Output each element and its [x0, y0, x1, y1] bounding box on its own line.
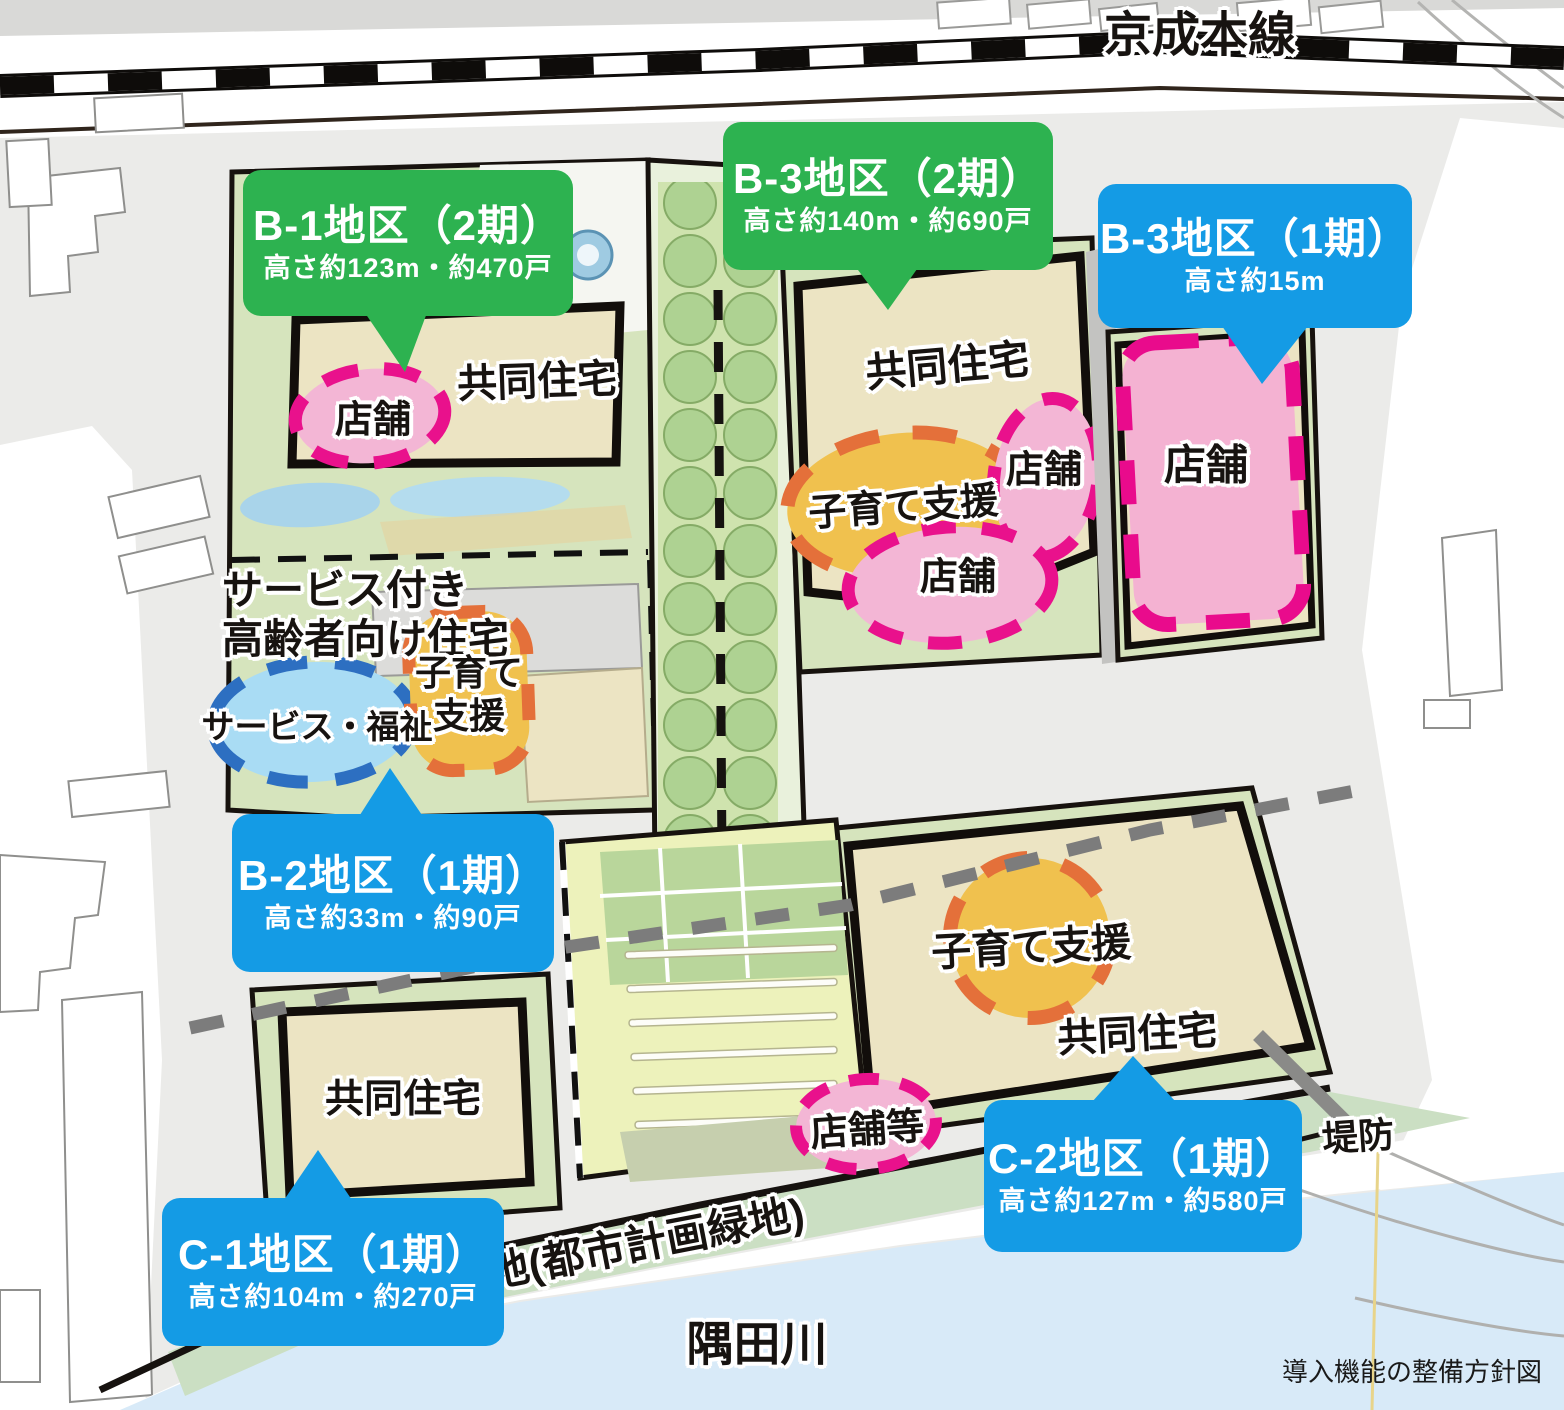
b3p2-shop-lower-label: 店舗 — [920, 546, 996, 601]
callout-c1: C-1地区（1期） 高さ約104m・約270戸 — [162, 1198, 504, 1346]
callout-c1-subtitle: 高さ約104m・約270戸 — [188, 1284, 477, 1311]
callout-c2-subtitle: 高さ約127m・約580戸 — [998, 1188, 1287, 1215]
b2-childcare-line2: 支援 — [415, 694, 523, 737]
callout-b1: B-1地区（2期） 高さ約123m・約470戸 — [243, 170, 573, 316]
b3p1-shop-label: 店舗 — [1164, 432, 1248, 493]
callout-c2: C-2地区（1期） 高さ約127m・約580戸 — [984, 1100, 1302, 1252]
b3p2-shop-upper-label: 店舗 — [1006, 439, 1082, 494]
callout-b2: B-2地区（1期） 高さ約33m・約90戸 — [232, 814, 554, 972]
callout-b2-title: B-2地区（1期） — [238, 855, 548, 897]
b2-senior-housing-line1: サービス付き — [222, 566, 509, 615]
embankment-label: 堤防 — [1320, 1106, 1395, 1163]
callout-b3-p1-title: B-3地区（1期） — [1100, 218, 1410, 260]
site-plan-map: B-1地区（2期） 高さ約123m・約470戸 B-3地区（2期） 高さ約140… — [0, 0, 1564, 1410]
callout-b3-p2: B-3地区（2期） 高さ約140m・約690戸 — [723, 122, 1053, 270]
b2-service-welfare-label: サービス・福祉 — [202, 700, 433, 748]
b2-senior-housing-label: サービス付き 高齢者向け住宅 — [222, 566, 509, 664]
building-b2-annex — [520, 668, 648, 802]
callout-b1-subtitle: 高さ約123m・約470戸 — [263, 255, 552, 282]
shop-etc-label: 店舗等 — [808, 1095, 926, 1158]
river-label: 隅田川 — [687, 1306, 828, 1375]
callout-b3-p2-title: B-3地区（2期） — [733, 158, 1043, 200]
b2-childcare-line1: 子育て — [415, 651, 523, 694]
callout-c1-title: C-1地区（1期） — [178, 1234, 488, 1276]
callout-b3-p1-subtitle: 高さ約15m — [1184, 268, 1325, 295]
c2-housing-label: 共同住宅 — [1056, 998, 1219, 1064]
c2-childcare-label: 子育て支援 — [930, 910, 1133, 978]
b2-childcare-label: 子育て 支援 — [415, 651, 523, 737]
c1-housing-label: 共同住宅 — [325, 1068, 481, 1124]
callout-c2-title: C-2地区（1期） — [988, 1138, 1298, 1180]
callout-b2-subtitle: 高さ約33m・約90戸 — [264, 905, 521, 932]
b1-housing-label: 共同住宅 — [456, 346, 618, 410]
railway-label: 京成本線 — [1104, 0, 1296, 65]
callout-b3-p2-subtitle: 高さ約140m・約690戸 — [743, 208, 1032, 235]
callout-b3-p1: B-3地区（1期） 高さ約15m — [1098, 184, 1412, 328]
b1-shop-label: 店舗 — [335, 389, 411, 444]
pond-pool-center — [577, 244, 599, 266]
lawn-garden-grid — [600, 840, 848, 985]
map-caption: 導入機能の整備方針図 — [1160, 1352, 1542, 1389]
callout-b1-title: B-1地区（2期） — [253, 205, 563, 247]
